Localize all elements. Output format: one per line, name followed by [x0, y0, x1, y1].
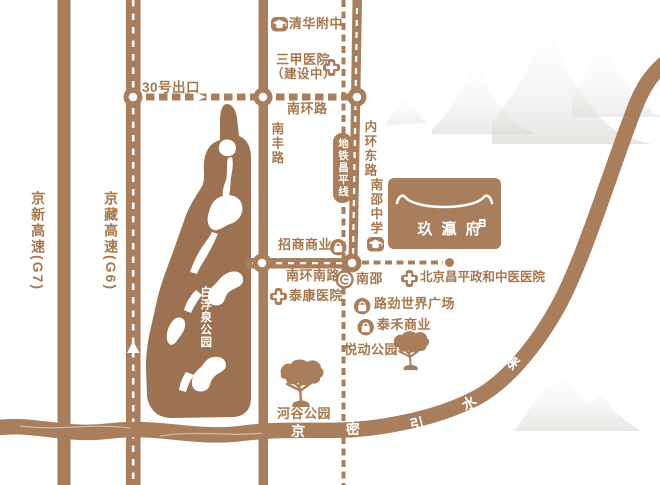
school-nanshao-label: 南邵中学 [368, 178, 382, 236]
school-icon [271, 17, 288, 32]
shopping-icon [330, 239, 346, 255]
park-yuedong-label: 悦动公园 [344, 343, 398, 358]
road-east-endpoint [445, 258, 454, 267]
hospital-cross-icon [270, 288, 287, 305]
mountains-top-right [385, 32, 660, 144]
road-junction-node [253, 254, 272, 273]
metro-line-label: 地铁昌平线 [336, 138, 351, 198]
park-baifuquan-label: 白浮泉公园 [198, 286, 211, 349]
hospital-sanjia-label: 三甲医院 [276, 53, 330, 68]
metro-station-label: 南邵 [356, 272, 383, 287]
park-hegu-label: 河谷公园 [277, 407, 331, 422]
g7-highway-label: 京新高速(G7) [30, 191, 46, 291]
road-nanhuanlu-label: 南环路 [287, 102, 328, 117]
canal-char: 密 [345, 421, 362, 438]
canal-char: 京 [290, 423, 307, 440]
road-g7-highway [58, 0, 71, 485]
road-nanfenglu [259, 0, 269, 485]
tree-icon [281, 360, 324, 407]
mall-lujin-label: 路劲世界广场 [374, 297, 455, 312]
project-name: 玖瀛府 [392, 218, 506, 239]
hospital-taikang-label: 泰康医院 [289, 289, 343, 304]
road-neihuandonglu-label: 内环东路 [362, 120, 376, 178]
hospital-sanjia-note: （建设中） [271, 67, 336, 81]
mountains-bottom-right [514, 373, 642, 432]
shopping-icon [354, 298, 370, 314]
tree-icon [394, 331, 429, 370]
exit-30-label: 30号出口 [142, 80, 200, 96]
road-nanhuannanlu-label: 南环南路 [286, 269, 340, 284]
hospital-zhenghe-label: 北京昌平政和中医医院 [420, 270, 545, 284]
location-map: 京新高速(G7) 京藏高速(G6) 30号出口 清华附中 三甲医院 （建设中） … [0, 0, 660, 485]
park-shape-baifuquan [146, 104, 251, 418]
road-nanfenglu-label: 南丰路 [269, 122, 283, 166]
road-junction-node [124, 88, 143, 107]
g6-highway-label: 京藏高速(G6) [103, 191, 119, 291]
shopping-icon [358, 319, 374, 335]
school-icon [367, 237, 384, 252]
road-junction-node [348, 88, 367, 107]
mall-zhaoshang-label: 招商商业 [278, 238, 332, 253]
hospital-cross-icon [401, 270, 418, 287]
school-qinghua-label: 清华附中 [289, 17, 343, 32]
road-junction-node [343, 254, 362, 273]
road-junction-node [254, 88, 273, 107]
mall-taihe-label: 泰禾商业 [377, 318, 431, 333]
